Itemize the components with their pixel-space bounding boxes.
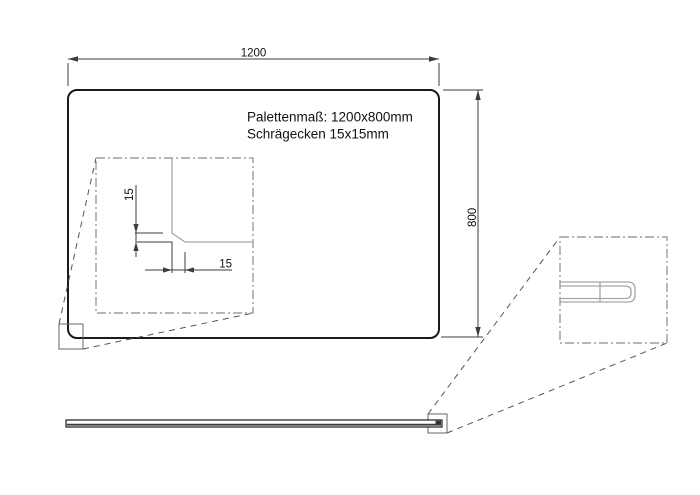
width-dimension-value: 1200 (241, 48, 267, 60)
arrow-right-icon (429, 56, 439, 61)
side-view-end-cap (436, 421, 442, 425)
arrow-down-icon (475, 327, 480, 337)
note-line-2: Schrägecken 15x15mm (247, 127, 389, 142)
detail-leader-line (428, 237, 560, 414)
side-view-outline (66, 420, 442, 427)
height-dimension-value: 800 (467, 208, 479, 227)
corner-detail-view: 15 15 (96, 158, 253, 313)
drawing-canvas: 1200 800 Palettenmaß: 1200x800mm Schräge… (0, 0, 700, 495)
chamfer-vertical-value: 15 (124, 188, 136, 201)
detail-leader-line (447, 343, 667, 433)
edge-detail-view (560, 237, 667, 343)
arrow-left-icon (68, 56, 78, 61)
edge-detail-box (560, 237, 667, 343)
pallet-technical-drawing: 1200 800 Palettenmaß: 1200x800mm Schräge… (0, 0, 700, 495)
note-line-1: Palettenmaß: 1200x800mm (247, 110, 413, 125)
height-dimension: 800 (441, 90, 483, 337)
pallet-side-view (66, 420, 442, 427)
chamfer-horizontal-value: 15 (219, 259, 232, 271)
width-dimension: 1200 (68, 48, 439, 87)
arrow-up-icon (475, 90, 480, 100)
